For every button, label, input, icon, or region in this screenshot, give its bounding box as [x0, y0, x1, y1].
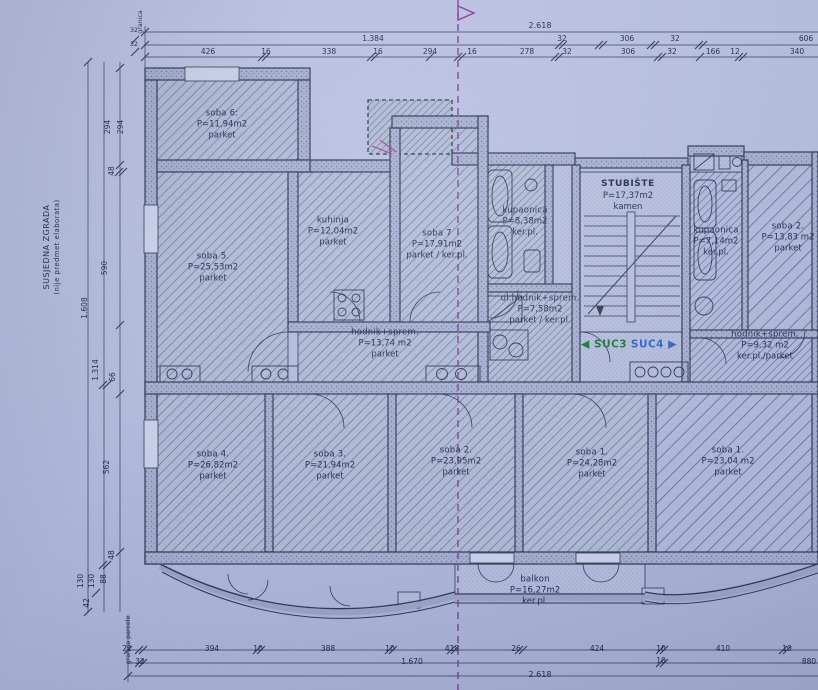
unit-name: SUC4 [631, 339, 664, 351]
dim-label: 32 [130, 27, 138, 35]
room-area: P=16,27m2 [510, 585, 560, 596]
dim-label: 294 [423, 47, 437, 57]
dim-label: 306 [620, 34, 634, 44]
arrow-left-icon: ◀ [581, 338, 590, 351]
room-name: hodnik+sprem. [731, 329, 799, 340]
room-label-soba-6: soba 6: P=11,94m2 parket [197, 108, 247, 141]
room-label-ul-hodnik: ul.hodnik+sprem. P=7,58m2 parket / ker.p… [501, 293, 580, 326]
boundary-label-top: granica [137, 10, 145, 34]
room-area: P=11,94m2 [197, 119, 247, 130]
room-area: P=7,14m2 [693, 236, 738, 247]
unit-label-suc3: ◀ SUC3 [581, 338, 627, 353]
dim-label: 388 [321, 644, 335, 654]
dim-label: 294 [116, 120, 126, 134]
room-area: P=12,04m2 [308, 226, 358, 237]
room-name: kuhinja [308, 215, 358, 226]
room-floor: parket [305, 472, 355, 483]
room-label-soba-3: soba 3. P=21,94m2 parket [305, 449, 355, 482]
dim-label: 130 [87, 574, 97, 588]
dim-label: 1.384 [362, 34, 383, 44]
dim-label: 32 [562, 47, 572, 57]
room-area: P=8,38m2 [502, 216, 547, 227]
room-name: soba 3. [305, 449, 355, 460]
room-floor: parket [308, 238, 358, 249]
dim-label: 10 [253, 644, 263, 654]
room-area: P=26,82m2 [188, 460, 238, 471]
dim-label: 26 [511, 644, 521, 654]
neighbor-building-line2: (nije predmet elaborata) [53, 199, 62, 294]
room-label-soba-1-center: soba 1. P=24,28m2 parket [567, 447, 617, 480]
boundary-label-bottom: granica parcele [125, 616, 133, 665]
room-name: soba 2. [762, 221, 815, 232]
dim-label: 16 [261, 47, 271, 57]
room-name: soba 7 [406, 228, 467, 239]
dim-label: 562 [102, 460, 112, 474]
dim-label: 48 [107, 166, 117, 176]
room-label-kuhinja: kuhinja P=12,04m2 parket [308, 215, 358, 248]
dim-label: 12 [730, 47, 740, 57]
room-area: P=17,37m2 [601, 191, 655, 202]
dim-bottom-total: 2.618 [529, 670, 552, 680]
room-name: soba 1. [702, 445, 755, 456]
unit-name: SUC3 [594, 339, 627, 351]
room-area: P=23,04 m2 [702, 456, 755, 467]
room-floor: parket / ker.pl. [501, 316, 580, 327]
room-floor: parket [197, 131, 247, 142]
room-label-kupaonica-right: kupaonica P=7,14m2 ker.pl. [693, 225, 738, 258]
dim-label: 410 [716, 644, 730, 654]
room-label-balkon: balkon P=16,27m2 ker.pl. [510, 574, 560, 607]
dim-label: 10 [656, 656, 666, 666]
room-area: P=21,94m2 [305, 460, 355, 471]
dim-label: 42 [82, 598, 92, 608]
dim-label: 424 [590, 644, 604, 654]
room-floor: parket [702, 468, 755, 479]
dim-label: 32 [667, 47, 677, 57]
room-label-soba-4: soba 4. P=26,82m2 parket [188, 449, 238, 482]
room-floor: parket [188, 472, 238, 483]
room-name: balkon [510, 574, 560, 585]
room-name: soba 2. [431, 445, 481, 456]
arrow-right-icon: ▶ [668, 338, 677, 351]
room-label-soba-2-center: soba 2. P=23,95m2 parket [431, 445, 481, 478]
room-floor: ker.pl. [693, 248, 738, 259]
room-area: P=23,95m2 [431, 456, 481, 467]
room-floor: parket [431, 468, 481, 479]
dim-label: 606 [799, 34, 813, 44]
room-floor: kamen [601, 202, 655, 213]
room-label-soba-7: soba 7 P=17,91m2 parket / ker.pl. [406, 228, 467, 261]
dim-label: 88 [99, 574, 109, 584]
dim-label: 10 [782, 644, 792, 654]
dim-label: 1.314 [91, 359, 101, 380]
dim-label: 278 [520, 47, 534, 57]
room-name: ul.hodnik+sprem. [501, 293, 580, 304]
unit-label-suc4: SUC4 ▶ [631, 338, 677, 353]
room-area: P=13,74 m2 [351, 338, 419, 349]
room-label-stubiste: STUBIŠTE P=17,37m2 kamen [601, 179, 655, 213]
dim-label: 16 [467, 47, 477, 57]
room-area: P=9,32 m2 [731, 340, 799, 351]
dim-label: 1.608 [80, 297, 90, 318]
neighbor-building-label: SUSJEDNA ZGRADA (nije predmet elaborata) [42, 199, 62, 294]
dim-label: 32 [135, 657, 145, 667]
room-floor: parket [762, 244, 815, 255]
floor-plan-photo: soba 6: P=11,94m2 parket soba 5. P=25,53… [0, 0, 818, 690]
room-floor: parket / ker.pl. [406, 251, 467, 262]
room-label-kupaonica-left: kupaonica P=8,38m2 ker.pl. [502, 205, 547, 238]
room-name: soba 6: [197, 108, 247, 119]
room-name: soba 1. [567, 447, 617, 458]
room-label-soba-1-right: soba 1. P=23,04 m2 parket [702, 445, 755, 478]
room-name: STUBIŠTE [601, 179, 655, 191]
dim-label: 22 [122, 644, 132, 654]
dim-label: 306 [621, 47, 635, 57]
dim-label: 880 [802, 657, 816, 667]
dim-label: 130 [76, 574, 86, 588]
dim-label: 426 [201, 47, 215, 57]
dim-label: 1.670 [401, 657, 422, 667]
dim-label: 66 [108, 372, 118, 382]
room-area: P=13,83 m2 [762, 232, 815, 243]
room-name: kupaonica [693, 225, 738, 236]
dim-label: 166 [706, 47, 720, 57]
dim-label: 32 [670, 34, 680, 44]
room-label-hodnik-left: hodnik+sprem. P=13,74 m2 parket [351, 327, 419, 360]
room-floor: parket [567, 470, 617, 481]
room-label-hodnik-right: hodnik+sprem. P=9,32 m2 ker.pl./parket [731, 329, 799, 362]
room-area: P=7,58m2 [501, 304, 580, 315]
room-label-soba-5: soba 5. P=25,53m2 parket [188, 251, 238, 284]
neighbor-building-line1: SUSJEDNA ZGRADA [42, 199, 53, 294]
room-area: P=25,53m2 [188, 262, 238, 273]
room-area: P=24,28m2 [567, 458, 617, 469]
room-area: P=17,91m2 [406, 239, 467, 250]
dim-label: 48 [107, 550, 117, 560]
dim-label: 294 [103, 120, 113, 134]
room-floor: ker.pl./parket [731, 352, 799, 363]
dim-label: 16 [373, 47, 383, 57]
room-name: soba 4. [188, 449, 238, 460]
room-floor: ker.pl. [502, 228, 547, 239]
dim-label: 10 [385, 644, 395, 654]
dim-label: 338 [322, 47, 336, 57]
room-name: kupaonica [502, 205, 547, 216]
room-name: hodnik+sprem. [351, 327, 419, 338]
room-floor: parket [188, 274, 238, 285]
dim-label: 590 [100, 261, 110, 275]
room-floor: ker.pl. [510, 597, 560, 608]
dim-label: 32 [130, 41, 138, 49]
dim-top-total: 2.618 [529, 21, 552, 31]
room-name: soba 5. [188, 251, 238, 262]
dim-label: 340 [790, 47, 804, 57]
room-label-soba-2-right: soba 2. P=13,83 m2 parket [762, 221, 815, 254]
dim-label: 394 [205, 644, 219, 654]
dim-label: 10 [656, 644, 666, 654]
room-floor: parket [351, 350, 419, 361]
dim-label: 418 [445, 644, 459, 654]
dim-label: 32 [557, 34, 567, 44]
